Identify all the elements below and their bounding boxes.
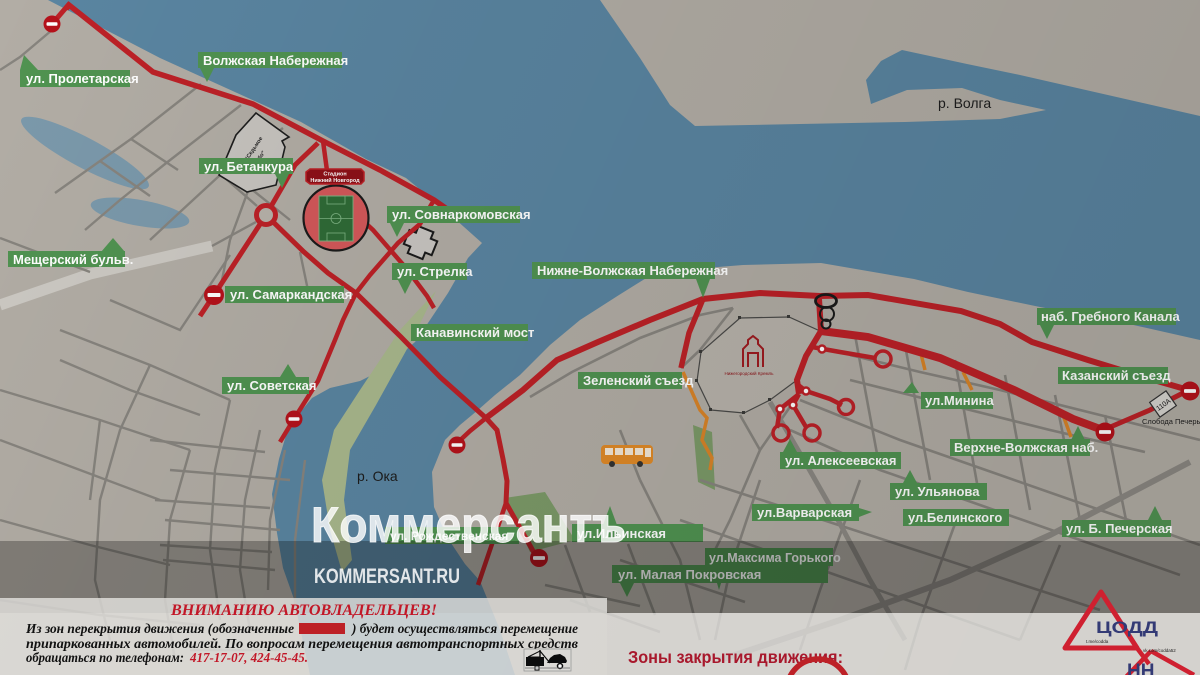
svg-text:417-17-07, 424-45-45.: 417-17-07, 424-45-45. bbox=[189, 650, 308, 665]
svg-text:припаркованных автомобилей. По: припаркованных автомобилей. По вопросам … bbox=[26, 636, 578, 651]
svg-text:ЦОДД: ЦОДД bbox=[1096, 618, 1158, 637]
svg-text:) будет осуществляться перемещ: ) будет осуществляться перемещение bbox=[350, 621, 578, 636]
svg-text:Зоны закрытия движения:: Зоны закрытия движения: bbox=[628, 647, 843, 667]
svg-text:Коммерсантъ: Коммерсантъ bbox=[311, 497, 626, 553]
svg-text:Из зон перекрытия движения (об: Из зон перекрытия движения (обозначенные bbox=[25, 621, 294, 636]
svg-text:vk.com/codda52: vk.com/codda52 bbox=[1143, 648, 1176, 653]
svg-text:НН: НН bbox=[1127, 661, 1154, 675]
svg-text:KOMMERSANT.RU: KOMMERSANT.RU bbox=[314, 564, 460, 588]
svg-text:ВНИМАНИЮ АВТОВЛАДЕЛЬЦЕВ!: ВНИМАНИЮ АВТОВЛАДЕЛЬЦЕВ! bbox=[170, 602, 437, 619]
svg-text:обращаться по телефонам:: обращаться по телефонам: bbox=[26, 650, 184, 665]
svg-text:t.me/codda: t.me/codda bbox=[1086, 639, 1109, 644]
